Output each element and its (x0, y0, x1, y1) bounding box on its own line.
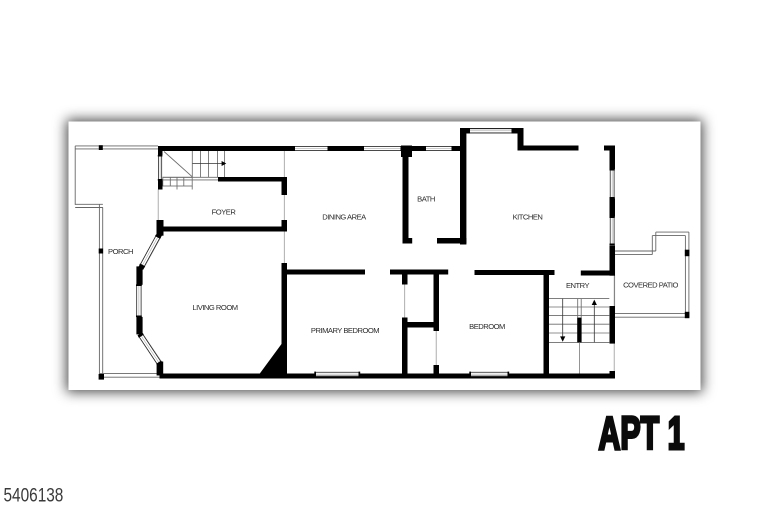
svg-text:BEDROOM: BEDROOM (469, 322, 505, 331)
svg-text:DINING AREA: DINING AREA (322, 213, 367, 222)
svg-text:KITCHEN: KITCHEN (513, 213, 543, 222)
svg-text:COVERED PATIO: COVERED PATIO (623, 281, 678, 290)
svg-text:PRIMARY BEDROOM: PRIMARY BEDROOM (311, 326, 379, 335)
svg-text:PORCH: PORCH (108, 247, 133, 256)
svg-text:LIVING ROOM: LIVING ROOM (192, 303, 237, 312)
svg-text:BATH: BATH (417, 195, 435, 204)
svg-text:APT 1: APT 1 (599, 409, 685, 460)
svg-text:5406138: 5406138 (4, 484, 64, 506)
svg-text:ENTRY: ENTRY (566, 281, 590, 290)
svg-text:FOYER: FOYER (212, 208, 237, 217)
